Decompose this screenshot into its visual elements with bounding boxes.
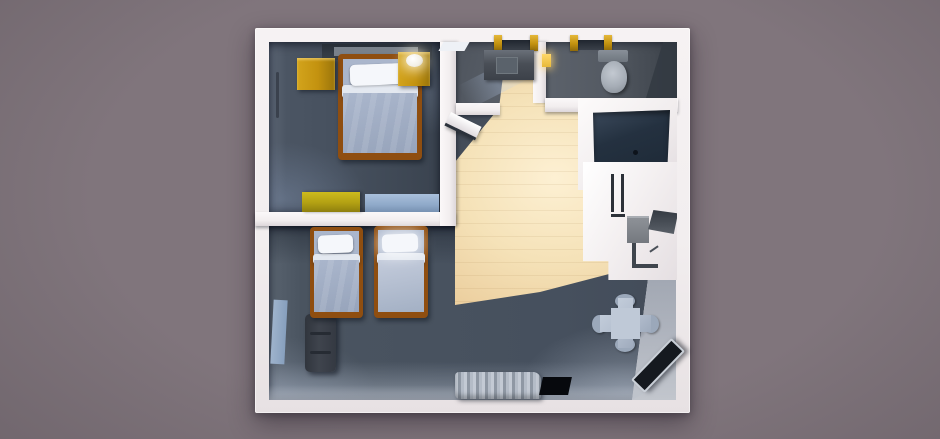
vanity-counter xyxy=(484,50,534,80)
nightstand-left xyxy=(297,58,335,90)
fridge-line xyxy=(611,174,614,212)
pillow xyxy=(318,234,354,253)
bathroom-divider-wall xyxy=(533,42,546,103)
corner-shadow xyxy=(646,42,677,98)
bedroom-living-divider-wall xyxy=(255,212,456,226)
fridge-base xyxy=(611,214,625,217)
door-frame-post xyxy=(494,35,502,51)
dresser xyxy=(302,192,360,212)
window-opening xyxy=(539,377,572,395)
toilet xyxy=(601,61,627,93)
sofa xyxy=(305,314,336,372)
floorplan xyxy=(255,28,690,413)
door-opening xyxy=(574,40,604,50)
blanket xyxy=(378,260,424,312)
counter-edge xyxy=(632,264,658,268)
dining-table-top xyxy=(611,308,640,339)
door-opening xyxy=(498,40,532,50)
blanket xyxy=(343,93,417,153)
bedroom-hall-wall xyxy=(440,42,456,226)
wall-window-line xyxy=(276,72,279,118)
twin-bed-left xyxy=(310,227,363,318)
pillow-lit xyxy=(382,233,418,252)
table-lamp xyxy=(406,54,423,67)
twin-bed-right xyxy=(374,226,428,318)
sofa-cushion-line xyxy=(310,332,331,335)
counter-tick xyxy=(649,245,658,252)
nightstand-right xyxy=(398,52,430,86)
fridge-line xyxy=(621,174,624,212)
blanket xyxy=(314,260,359,312)
lit-shelf xyxy=(438,42,469,51)
vanity-south-wall xyxy=(456,103,500,115)
lit-door-edge xyxy=(542,54,551,67)
dining-set xyxy=(591,294,659,352)
bench xyxy=(365,194,439,212)
drain-icon xyxy=(633,150,638,155)
curtains xyxy=(455,372,541,399)
door-frame-post xyxy=(604,35,612,51)
sofa-cushion-line xyxy=(310,351,331,354)
wall-basin xyxy=(648,210,678,234)
door-frame-post xyxy=(530,35,538,51)
scene-background xyxy=(0,0,940,439)
cooktop xyxy=(627,216,649,243)
vanity-sink xyxy=(496,57,518,74)
door-frame-post xyxy=(570,35,578,51)
